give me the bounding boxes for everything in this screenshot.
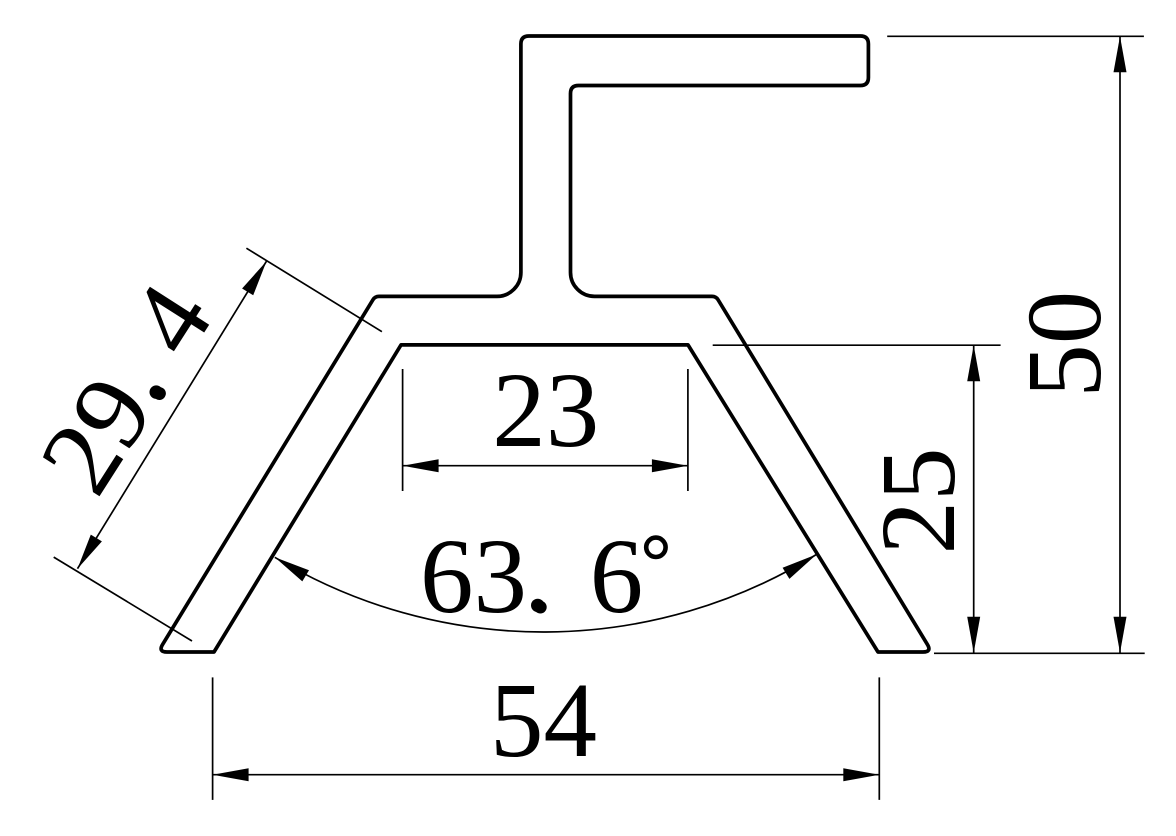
svg-text:6: 6 [590,518,644,636]
svg-text:25: 25 [860,448,978,555]
svg-text:50: 50 [1006,291,1124,398]
svg-text:23: 23 [492,352,599,470]
svg-text:54: 54 [490,662,597,780]
svg-text:63.: 63. [420,518,554,636]
